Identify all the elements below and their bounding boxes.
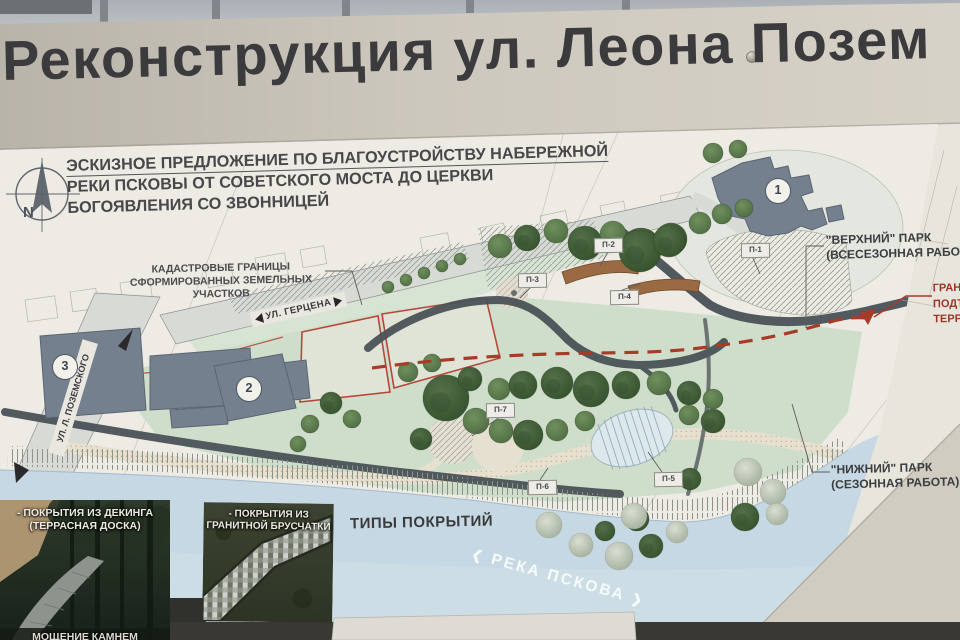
- granite-caption-line2: ГРАНИТНОЙ БРУСЧАТКИ: [203, 520, 333, 533]
- granite-photo: - ПОКРЫТИЯ ИЗ ГРАНИТНОЙ БРУСЧАТКИ: [202, 502, 334, 623]
- coverings-header: ТИПЫ ПОКРЫТИЙ: [350, 513, 493, 533]
- flood-boundary-label: ГРАНИ ПОДТ ТЕРР: [933, 281, 960, 328]
- photo-of-information-board: { "title": "Реконструкция ул. Леона Позе…: [0, 0, 960, 640]
- decking-caption-line2: (ТЕРРАСНАЯ ДОСКА): [0, 520, 170, 532]
- street-arrow-left-icon: [254, 313, 264, 324]
- area-marker-p2: П-2: [594, 238, 623, 254]
- decking-photo: - ПОКРЫТИЯ ИЗ ДЕКИНГА (ТЕРРАСНАЯ ДОСКА) …: [0, 500, 170, 640]
- compass-north-letter: N: [23, 204, 34, 221]
- area-marker-p3: П-3: [518, 273, 547, 289]
- building-number-3: 3: [52, 354, 78, 380]
- upper-park-label: "ВЕРХНИЙ" ПАРК (ВСЕСЕЗОННАЯ РАБОТА): [826, 229, 960, 263]
- area-marker-p4: П-4: [610, 290, 639, 306]
- decking-caption-line1: - ПОКРЫТИЯ ИЗ ДЕКИНГА: [0, 507, 170, 519]
- area-marker-p7: П-7: [486, 403, 515, 419]
- lower-park-label: "НИЖНИЙ" ПАРК (СЕЗОННАЯ РАБОТА): [831, 459, 960, 492]
- river-bracket-left: ❮: [470, 546, 487, 564]
- area-marker-p1: П-1: [741, 243, 770, 259]
- area-marker-p5: П-5: [654, 472, 683, 488]
- building-number-1: 1: [765, 178, 791, 204]
- stone-paving-caption: МОЩЕНИЕ КАМНЕМ: [0, 631, 170, 640]
- cadastral-note-line2: СФОРМИРОВАННЫХ ЗЕМЕЛЬНЫХ УЧАСТКОВ: [118, 273, 324, 303]
- building-number-2: 2: [236, 376, 262, 402]
- street-arrow-right-icon: [333, 295, 343, 306]
- area-marker-p6: П-6: [528, 480, 557, 496]
- granite-caption-line1: - ПОКРЫТИЯ ИЗ: [204, 508, 334, 521]
- cadastral-note: КАДАСТРОВЫЕ ГРАНИЦЫ СФОРМИРОВАННЫХ ЗЕМЕЛ…: [118, 260, 325, 303]
